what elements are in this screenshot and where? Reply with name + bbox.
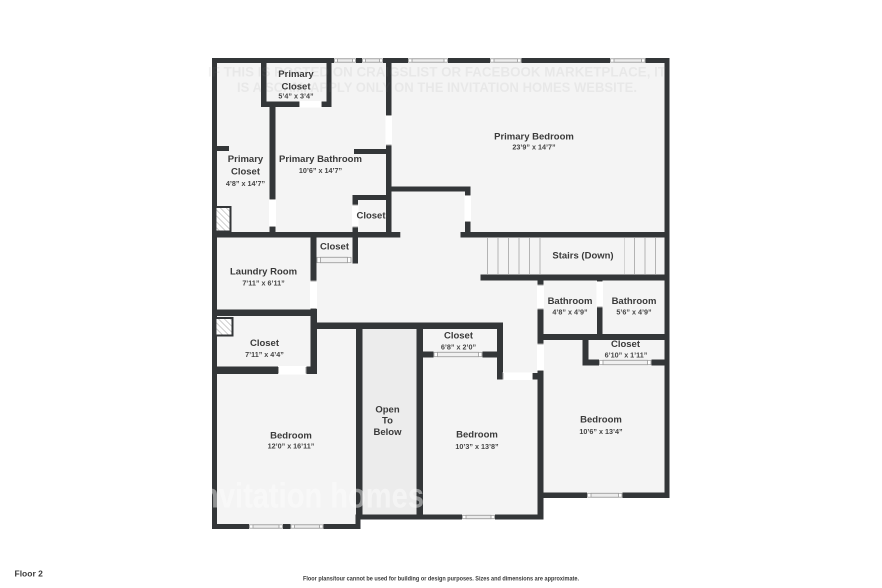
svg-text:6’8” x 2’0”: 6’8” x 2’0”: [441, 343, 477, 352]
svg-text:Bedroom: Bedroom: [580, 415, 622, 426]
svg-text:10’6” x 13’4”: 10’6” x 13’4”: [579, 427, 623, 436]
svg-text:Closet: Closet: [231, 167, 261, 178]
svg-text:Primary Bathroom: Primary Bathroom: [279, 154, 362, 165]
svg-text:4’8” x 4’9”: 4’8” x 4’9”: [552, 308, 588, 317]
svg-text:invitation homes: invitation homes: [193, 477, 424, 516]
svg-text:Laundry Room: Laundry Room: [230, 267, 297, 278]
svg-text:Bathroom: Bathroom: [612, 296, 657, 307]
svg-text:Primary: Primary: [228, 154, 264, 165]
svg-text:12’0” x 16’11”: 12’0” x 16’11”: [268, 442, 315, 451]
svg-text:Primary Bedroom: Primary Bedroom: [494, 132, 574, 143]
svg-text:Bathroom: Bathroom: [548, 296, 593, 307]
svg-text:Closet: Closet: [356, 211, 386, 222]
svg-text:Primary: Primary: [278, 69, 314, 80]
svg-text:Closet: Closet: [611, 339, 641, 350]
svg-text:Bedroom: Bedroom: [456, 430, 498, 441]
svg-text:5’4” x 3’4”: 5’4” x 3’4”: [278, 92, 314, 101]
svg-text:Stairs (Down): Stairs (Down): [552, 251, 613, 262]
svg-text:7’11” x 6’11”: 7’11” x 6’11”: [242, 279, 285, 288]
svg-text:Open: Open: [375, 405, 399, 416]
svg-text:Floor 2: Floor 2: [15, 569, 44, 579]
svg-text:Below: Below: [374, 427, 403, 438]
svg-text:10’6” x 14’7”: 10’6” x 14’7”: [299, 166, 343, 175]
svg-text:Closet: Closet: [250, 338, 280, 349]
svg-text:6’10” x 1’11”: 6’10” x 1’11”: [605, 351, 648, 360]
svg-text:4’8” x 14’7”: 4’8” x 14’7”: [226, 179, 266, 188]
svg-text:IF THIS IS POSTED ON CRAIGSLIS: IF THIS IS POSTED ON CRAIGSLIST OR FACEB…: [208, 65, 667, 80]
svg-text:23’9” x 14’7”: 23’9” x 14’7”: [512, 142, 556, 151]
svg-text:Floor plans/tour cannot be use: Floor plans/tour cannot be used for buil…: [303, 576, 579, 583]
svg-text:To: To: [382, 416, 393, 427]
svg-text:7’11” x 4’4”: 7’11” x 4’4”: [245, 350, 284, 359]
svg-text:Bedroom: Bedroom: [270, 431, 312, 442]
svg-text:10’3” x 13’8”: 10’3” x 13’8”: [455, 442, 499, 451]
svg-text:Closet: Closet: [444, 331, 474, 342]
svg-text:5’6” x 4’9”: 5’6” x 4’9”: [616, 308, 652, 317]
svg-text:Closet: Closet: [320, 242, 350, 253]
